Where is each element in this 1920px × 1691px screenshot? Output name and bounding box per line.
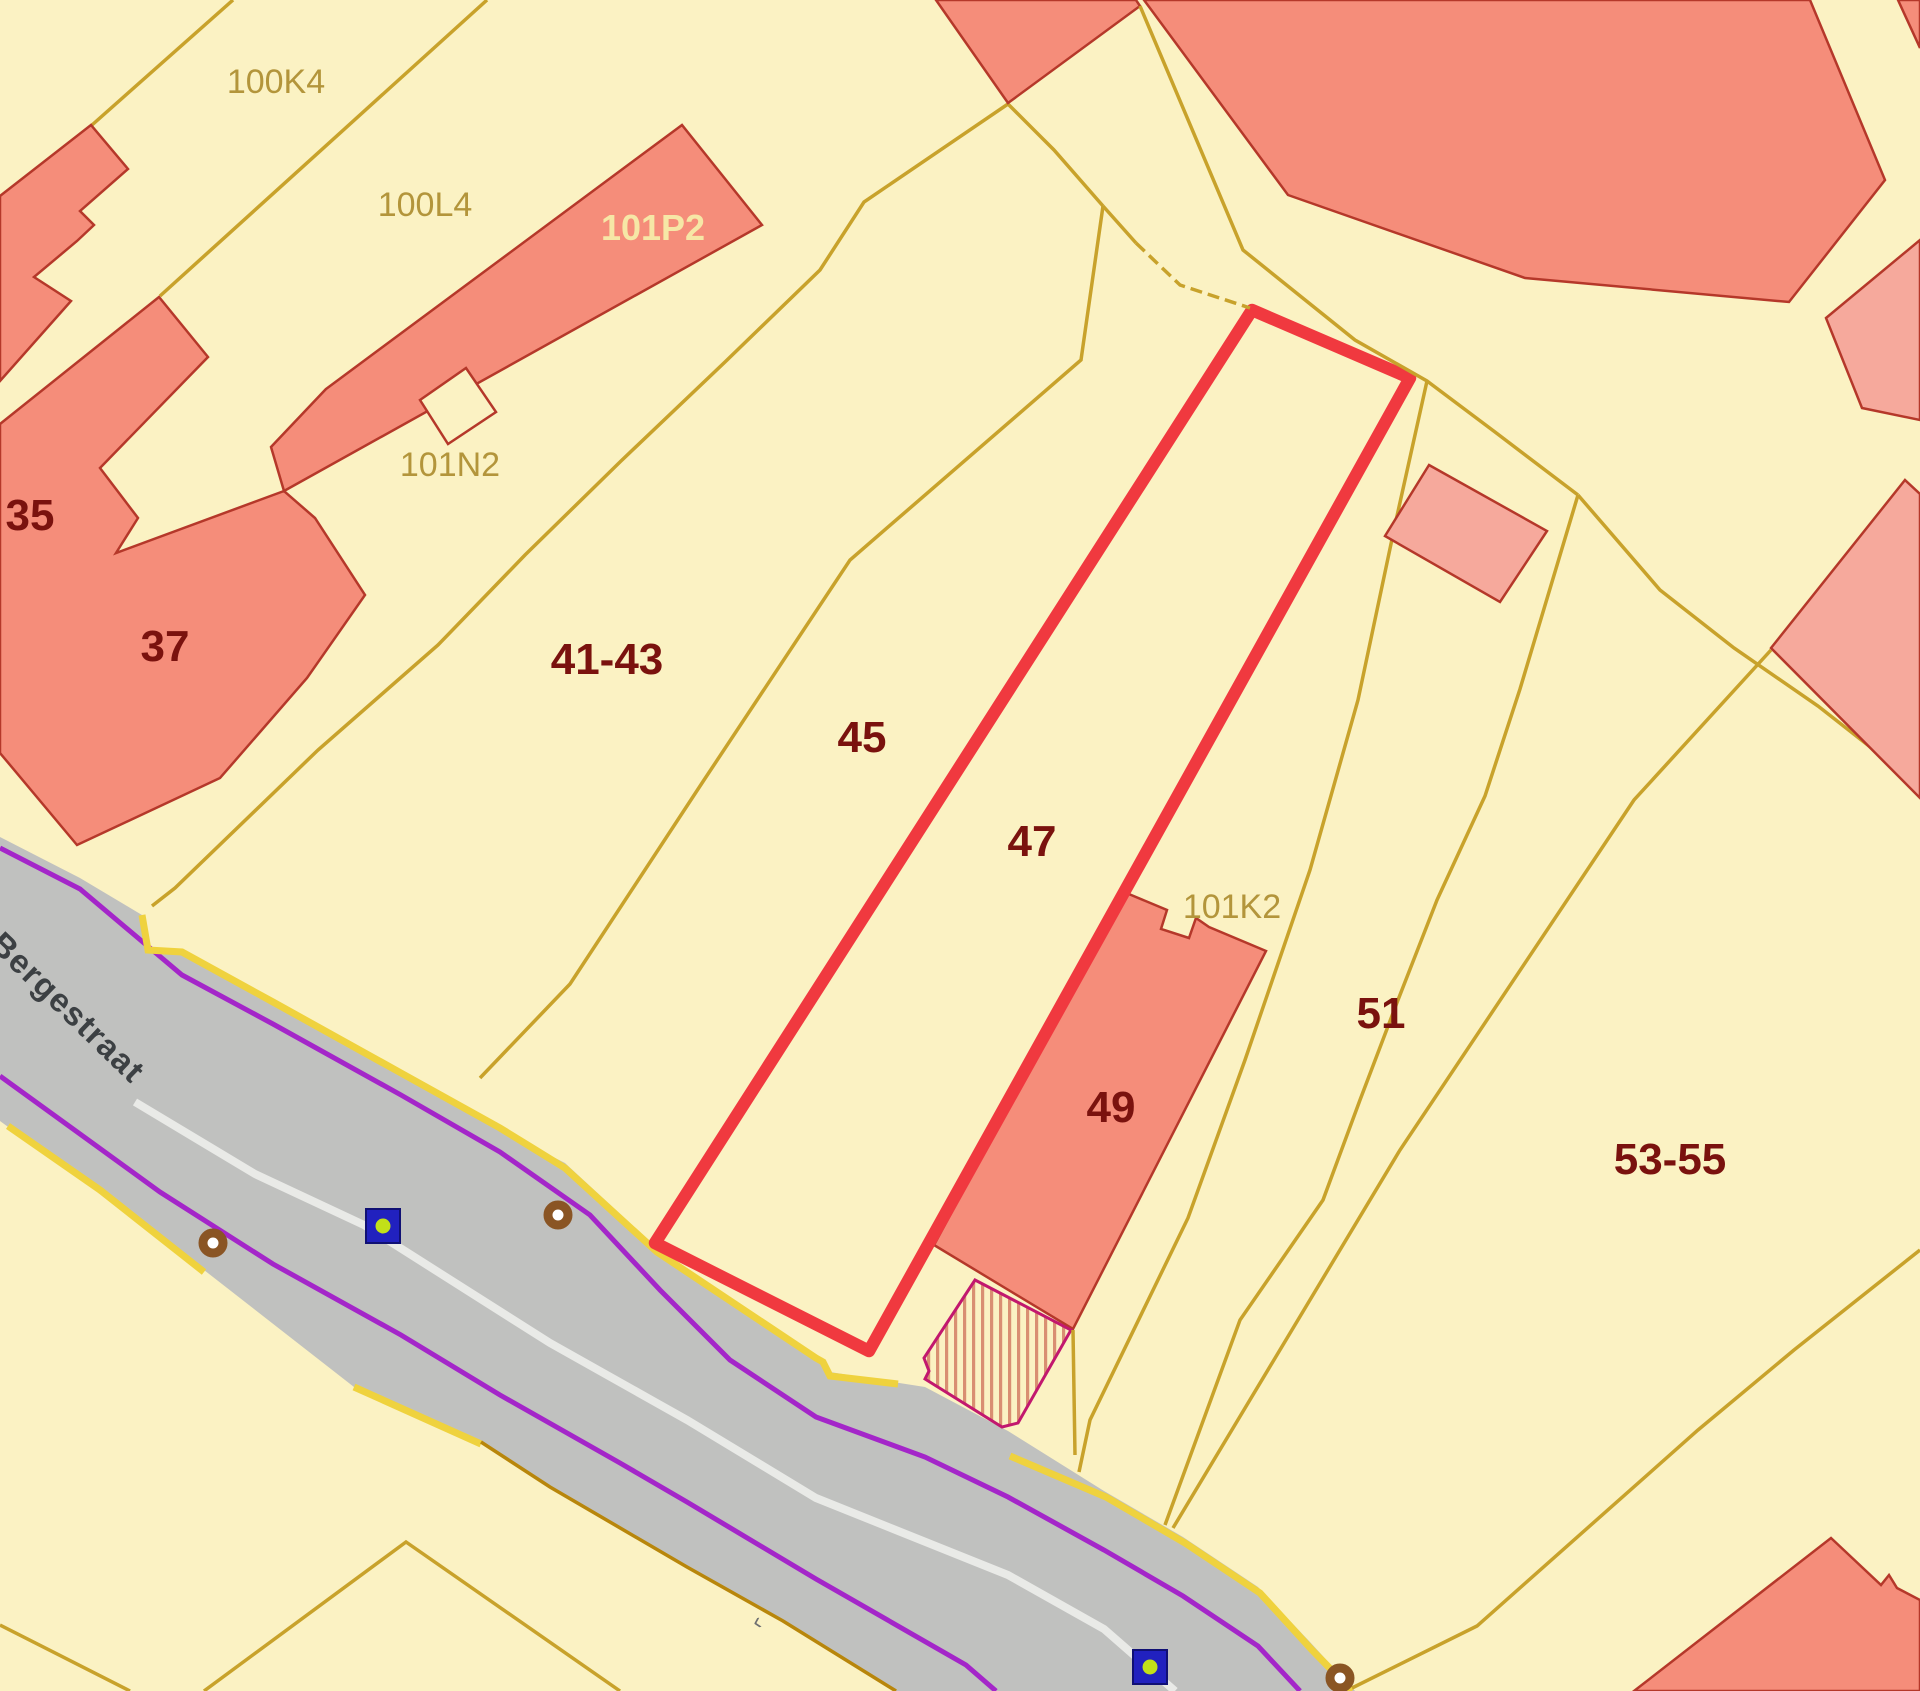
- svg-text:41-43: 41-43: [551, 635, 664, 684]
- svg-text:53-55: 53-55: [1614, 1135, 1727, 1184]
- svg-text:45: 45: [838, 713, 887, 762]
- svg-text:101N2: 101N2: [400, 446, 500, 484]
- svg-text:100K4: 100K4: [227, 63, 325, 101]
- svg-text:100L4: 100L4: [378, 186, 473, 224]
- svg-text:35: 35: [6, 491, 55, 540]
- svg-text:101P2: 101P2: [601, 207, 705, 248]
- svg-text:51: 51: [1357, 989, 1406, 1038]
- svg-text:47: 47: [1008, 817, 1057, 866]
- svg-text:101K2: 101K2: [1183, 888, 1281, 926]
- svg-text:49: 49: [1087, 1083, 1136, 1132]
- svg-text:37: 37: [141, 622, 190, 671]
